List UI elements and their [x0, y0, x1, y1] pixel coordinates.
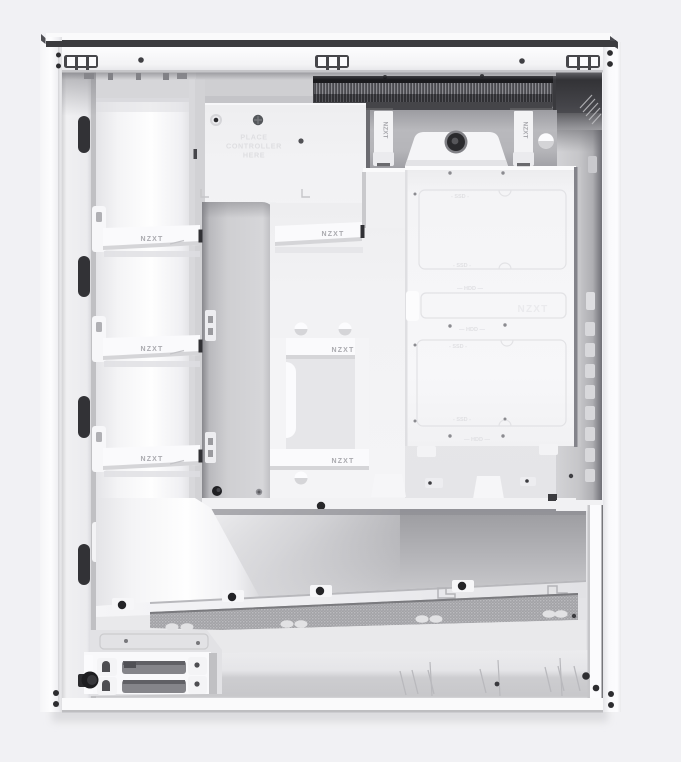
svg-text:— HDD —: — HDD — [457, 286, 483, 292]
svg-text:CONTROLLER: CONTROLLER [226, 142, 282, 151]
svg-text:- SSD -: - SSD - [453, 263, 471, 269]
svg-text:NZXT: NZXT [331, 458, 354, 465]
svg-text:— HDD —: — HDD — [459, 327, 485, 333]
svg-text:NZXT: NZXT [522, 122, 529, 139]
svg-text:NZXT: NZXT [140, 456, 163, 463]
svg-text:NZXT: NZXT [518, 304, 549, 315]
svg-text:NZXT: NZXT [382, 122, 389, 139]
svg-text:— HDD —: — HDD — [464, 437, 490, 443]
svg-text:- SSD -: - SSD - [453, 417, 471, 423]
svg-text:HERE: HERE [243, 151, 265, 160]
svg-text:- SSD -: - SSD - [449, 344, 467, 350]
svg-text:- SSD -: - SSD - [451, 194, 469, 200]
svg-text:NZXT: NZXT [331, 347, 354, 354]
svg-text:PLACE: PLACE [240, 133, 267, 142]
svg-text:NZXT: NZXT [140, 346, 163, 353]
svg-text:NZXT: NZXT [321, 231, 344, 238]
svg-text:NZXT: NZXT [140, 236, 163, 243]
